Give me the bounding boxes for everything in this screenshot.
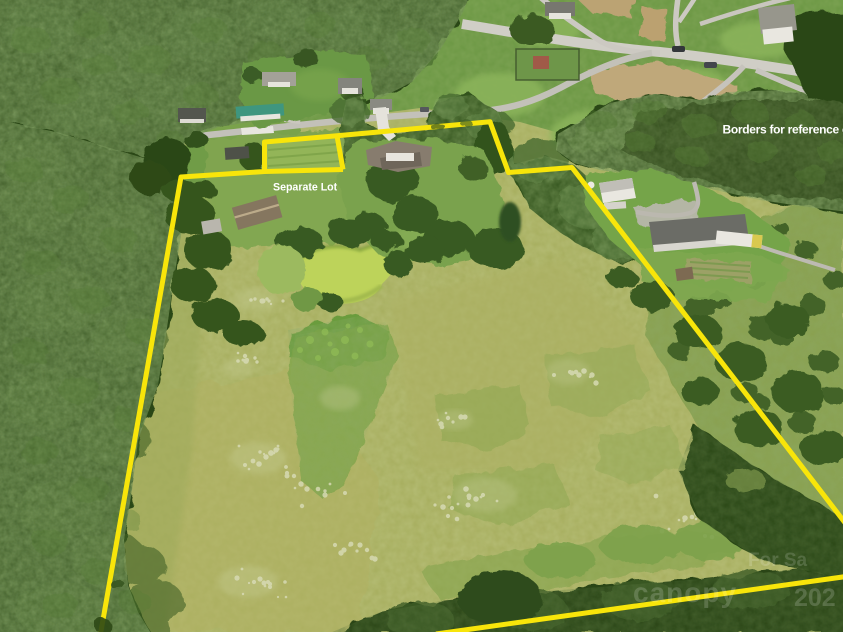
svg-text:202: 202 (794, 584, 836, 612)
svg-text:canopy: canopy (633, 577, 737, 608)
svg-text:For Sa: For Sa (748, 550, 808, 571)
svg-text:Borders for reference only: Borders for reference only (723, 123, 843, 137)
svg-text:Separate Lot: Separate Lot (273, 182, 338, 194)
